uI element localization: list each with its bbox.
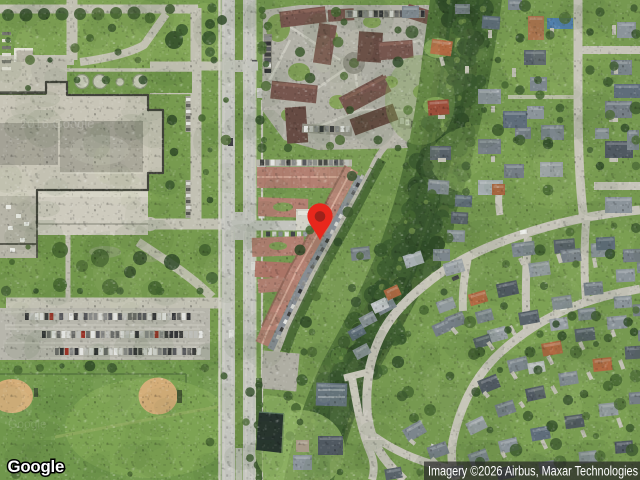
svg-text:Google: Google (8, 417, 47, 431)
svg-text:Google: Google (8, 457, 65, 476)
svg-text:Imagery ©2026 Airbus, Maxar Te: Imagery ©2026 Airbus, Maxar Technologies (428, 464, 638, 479)
